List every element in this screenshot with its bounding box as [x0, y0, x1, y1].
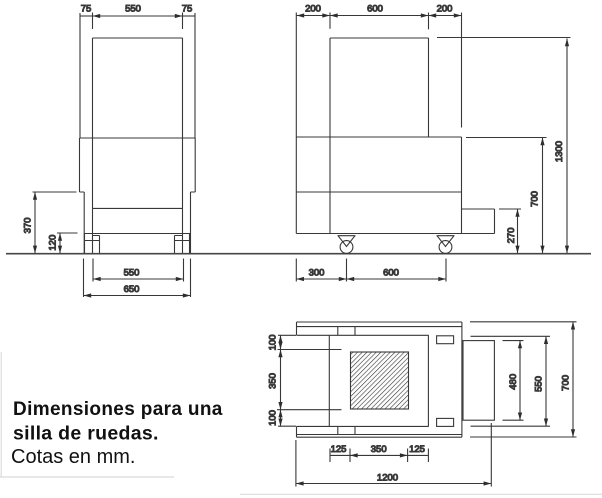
svg-text:75: 75 [81, 4, 92, 15]
svg-text:350: 350 [268, 373, 279, 389]
svg-text:100: 100 [268, 335, 279, 351]
svg-text:125: 125 [331, 444, 347, 455]
svg-text:700: 700 [561, 375, 572, 391]
svg-text:75: 75 [182, 4, 193, 15]
svg-text:550: 550 [125, 4, 141, 15]
svg-text:125: 125 [409, 444, 425, 455]
svg-text:370: 370 [23, 218, 34, 234]
svg-text:Cotas en mm.: Cotas en mm. [11, 446, 135, 468]
svg-text:600: 600 [383, 268, 399, 279]
svg-text:200: 200 [305, 4, 321, 15]
svg-text:1300: 1300 [554, 141, 565, 162]
svg-text:300: 300 [309, 268, 325, 279]
svg-text:700: 700 [530, 191, 541, 207]
svg-text:600: 600 [367, 4, 383, 15]
svg-text:120: 120 [48, 235, 59, 251]
svg-text:100: 100 [268, 410, 279, 426]
svg-text:silla de ruedas.: silla de ruedas. [13, 423, 159, 445]
svg-text:550: 550 [124, 268, 140, 279]
svg-text:550: 550 [534, 376, 545, 392]
svg-text:270: 270 [506, 228, 517, 244]
svg-text:1200: 1200 [377, 473, 398, 484]
svg-text:200: 200 [437, 4, 453, 15]
svg-text:650: 650 [124, 284, 140, 295]
svg-text:350: 350 [371, 444, 387, 455]
svg-text:480: 480 [508, 374, 519, 390]
svg-text:Dimensiones para una: Dimensiones para una [13, 399, 223, 420]
